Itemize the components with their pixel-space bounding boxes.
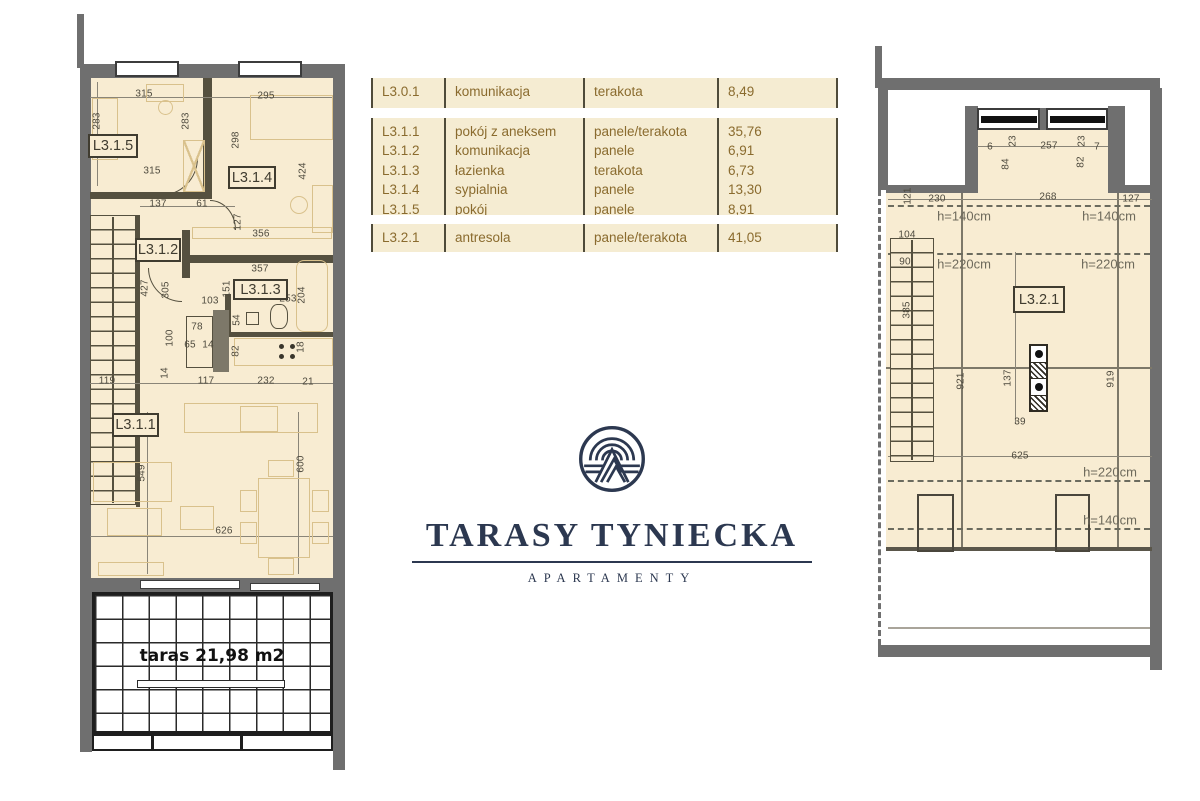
- interior-wall: [182, 230, 190, 278]
- dimension-label: 82: [231, 345, 242, 357]
- table-cell: komunikacja: [455, 141, 583, 160]
- table-column: 35,766,916,7313,308,91: [717, 118, 836, 215]
- roof-edge-dashed: [878, 190, 881, 645]
- dimension-label: 626: [215, 526, 232, 537]
- table-cell: sypialnia: [455, 180, 583, 199]
- room-label: L3.1.3: [233, 279, 288, 300]
- dimension-label: 61: [196, 199, 208, 210]
- roof-window: [917, 494, 954, 552]
- table-column: panele/terakota: [583, 224, 717, 252]
- terrace-wall-right: [333, 592, 345, 770]
- table-column: pokój z aneksemkomunikacjałazienkasypial…: [444, 118, 583, 215]
- dimension-label: 117: [198, 376, 215, 387]
- sink: [246, 312, 259, 325]
- table-cell: 13,30: [728, 180, 836, 199]
- dimension-line: [1015, 252, 1016, 424]
- kitchen-counter: [234, 338, 333, 366]
- table-cell: L3.1.3: [382, 161, 444, 180]
- table-cell: L3.1.2: [382, 141, 444, 160]
- wall-stub: [77, 14, 84, 68]
- height-label: h=140cm: [1083, 513, 1137, 528]
- brand-title: TARASY TYNIECKA: [400, 517, 824, 555]
- dimension-label: 6: [987, 142, 993, 153]
- stove-burner: [279, 354, 284, 359]
- table-column: L3.0.1: [371, 78, 444, 108]
- height-label: h=220cm: [937, 257, 991, 272]
- window: [238, 61, 302, 77]
- window: [115, 61, 179, 77]
- dimension-label: 305: [161, 281, 172, 298]
- dimension-label: 82: [1076, 156, 1087, 168]
- room-label: L3.1.2: [135, 238, 181, 262]
- table-column: L3.1.1L3.1.2L3.1.3L3.1.4L3.1.5: [371, 118, 444, 215]
- planter-divider: [240, 735, 243, 750]
- table-cell: L3.0.1: [382, 82, 444, 101]
- dimension-label: 54: [232, 314, 243, 326]
- brand-block: TARASY TYNIECKA APARTAMENTY: [400, 425, 824, 586]
- staircase-rail: [112, 217, 114, 503]
- attic-wall-bottom: [878, 645, 1160, 657]
- table-cell: łazienka: [455, 161, 583, 180]
- dimension-label: 385: [902, 301, 913, 318]
- dimension-label: 100: [165, 329, 176, 346]
- vent-cell: [1031, 396, 1046, 410]
- knee-wall-right: [1108, 185, 1152, 193]
- table-cell: 8,91: [728, 200, 836, 215]
- dimension-label: 232: [257, 376, 274, 387]
- dimension-label: 137: [149, 199, 166, 210]
- dimension-label: 315: [135, 89, 152, 100]
- dining-chair: [268, 460, 294, 477]
- tv-stand: [98, 562, 164, 576]
- dimension-label: 549: [137, 464, 148, 481]
- height-line-140: [888, 205, 1150, 207]
- dimension-label: 84: [1001, 158, 1012, 170]
- dimension-label: 7: [1094, 142, 1100, 153]
- mountain-circle-logo-icon: [578, 425, 646, 493]
- dimension-label: 424: [298, 162, 309, 179]
- dimension-label: 104: [898, 230, 915, 241]
- dimension-label: 78: [191, 322, 203, 333]
- dimension-label: 151: [222, 280, 233, 297]
- dimension-label: 119: [99, 376, 116, 387]
- armchair: [107, 508, 162, 536]
- dimension-label: 268: [1039, 192, 1056, 203]
- dimension-label: 14: [160, 367, 171, 379]
- kitchen-appliance: [240, 406, 278, 432]
- table-cell: 6,73: [728, 161, 836, 180]
- height-label: h=140cm: [937, 209, 991, 224]
- dining-chair: [240, 522, 257, 544]
- chimney-stack: [1029, 344, 1048, 412]
- planter-divider: [151, 735, 154, 750]
- dimension-label: 137: [1003, 369, 1014, 386]
- table-cell: komunikacja: [455, 82, 583, 101]
- dormer-wall-right: [1108, 106, 1125, 192]
- brand-rule: [412, 561, 812, 563]
- table-column: komunikacja: [444, 78, 583, 108]
- dimension-label: 21: [302, 377, 314, 388]
- installation-shaft: [213, 310, 229, 372]
- dimension-label: 356: [252, 229, 269, 240]
- table-cell: terakota: [594, 82, 717, 101]
- bed: [250, 95, 333, 140]
- height-label: h=220cm: [1081, 257, 1135, 272]
- window-bar: [1050, 116, 1105, 123]
- window-bar: [981, 116, 1037, 123]
- vent-cell: [1031, 346, 1046, 363]
- dimension-label: 283: [92, 112, 103, 129]
- desk-chair: [158, 100, 173, 115]
- terrace-door-window: [140, 580, 240, 589]
- staircase-rail: [911, 240, 913, 460]
- table-column: antresola: [444, 224, 583, 252]
- dining-chair: [312, 522, 329, 544]
- table-band: L3.1.1L3.1.2L3.1.3L3.1.4L3.1.5pokój z an…: [371, 118, 838, 215]
- eave-line: [888, 627, 1150, 629]
- terrace-bench: [137, 680, 285, 688]
- coffee-table: [180, 506, 214, 530]
- dimension-label: 625: [1011, 451, 1028, 462]
- height-line-220: [888, 480, 1150, 482]
- dimension-label: 298: [231, 131, 242, 148]
- table-cell: L3.1.4: [382, 180, 444, 199]
- interior-wall: [228, 332, 333, 337]
- table-cell: panele: [594, 200, 717, 215]
- attic-wall-top: [878, 78, 1160, 90]
- stove-burner: [290, 354, 295, 359]
- dimension-label: 103: [201, 296, 218, 307]
- table-column: L3.2.1: [371, 224, 444, 252]
- desk-chair: [290, 196, 308, 214]
- table-cell: panele/terakota: [594, 228, 717, 247]
- dimension-label: 23: [1008, 135, 1019, 147]
- table-column: terakota: [583, 78, 717, 108]
- terrace-wall-left: [80, 592, 92, 752]
- height-label: h=220cm: [1083, 465, 1137, 480]
- dining-chair: [240, 490, 257, 512]
- table-cell: L3.1.1: [382, 122, 444, 141]
- terrace-window: [250, 583, 320, 591]
- vent-cell: [1031, 363, 1046, 379]
- dining-chair: [268, 558, 294, 575]
- dimension-label: 127: [1122, 194, 1139, 205]
- terrace-planter-row: [92, 734, 333, 751]
- table-cell: terakota: [594, 161, 717, 180]
- room-label: L3.2.1: [1013, 286, 1065, 313]
- dimension-label: 39: [1014, 417, 1026, 428]
- table-cell: L3.1.5: [382, 200, 444, 215]
- vent-cell: [1031, 379, 1046, 396]
- dimension-label: 295: [257, 91, 274, 102]
- dining-table: [258, 478, 310, 558]
- dimension-label: 204: [297, 286, 308, 303]
- dimension-label: 14: [202, 340, 214, 351]
- table-cell: pokój z aneksem: [455, 122, 583, 141]
- attic-wall-left-upper: [878, 78, 888, 190]
- dimension-label: 600: [296, 455, 307, 472]
- dimension-label: 919: [1106, 370, 1117, 387]
- floorplan-sheet: taras 21,98 m2 L3.0.1komunikacjaterakota…: [0, 0, 1200, 801]
- knee-line: [961, 193, 963, 548]
- dining-chair: [312, 490, 329, 512]
- table-cell: panele: [594, 141, 717, 160]
- knee-line: [1117, 193, 1119, 548]
- table-cell: panele: [594, 180, 717, 199]
- dimension-label: 90: [899, 257, 911, 268]
- table-column: 8,49: [717, 78, 836, 108]
- dimension-label: 23: [1077, 135, 1088, 147]
- wall-right: [333, 64, 345, 592]
- table-cell: pokój: [455, 200, 583, 215]
- table-cell: panele/terakota: [594, 122, 717, 141]
- dimension-label: 65: [184, 340, 196, 351]
- dimension-label: 427: [140, 279, 151, 296]
- desk: [312, 185, 333, 233]
- dimension-label: 283: [181, 112, 192, 129]
- table-cell: 8,49: [728, 82, 836, 101]
- table-column: 41,05: [717, 224, 836, 252]
- table-cell: 6,91: [728, 141, 836, 160]
- table-cell: antresola: [455, 228, 583, 247]
- room-label: L3.1.5: [88, 134, 138, 158]
- terrace-area-label: taras 21,98 m2: [140, 646, 285, 666]
- attic-wall-stub: [875, 46, 882, 88]
- dimension-label: 18: [296, 341, 307, 353]
- table-cell: L3.2.1: [382, 228, 444, 247]
- table-band: L3.0.1komunikacjaterakota8,49: [371, 78, 838, 108]
- sofa: [93, 462, 172, 502]
- knee-wall-left: [886, 185, 978, 193]
- table-band: L3.2.1antresolapanele/terakota41,05: [371, 224, 838, 252]
- dimension-label: 315: [143, 166, 160, 177]
- table-cell: 35,76: [728, 122, 836, 141]
- toilet: [270, 304, 288, 329]
- dimension-label: 121: [903, 187, 914, 204]
- stove-burner: [279, 344, 284, 349]
- room-label: L3.1.1: [112, 413, 159, 437]
- attic-wall-right: [1150, 88, 1162, 670]
- table-cell: 41,05: [728, 228, 836, 247]
- stove-burner: [290, 344, 295, 349]
- dimension-label: 921: [956, 372, 967, 389]
- height-label: h=140cm: [1082, 209, 1136, 224]
- dimension-label: 257: [1040, 141, 1057, 152]
- wardrobe: [183, 140, 205, 192]
- table-column: panele/terakotapaneleterakotapanelepanel…: [583, 118, 717, 215]
- dimension-label: 127: [233, 213, 244, 230]
- dimension-label: 230: [928, 194, 945, 205]
- dimension-label: 357: [251, 264, 268, 275]
- brand-subtitle: APARTAMENTY: [400, 571, 824, 586]
- room-label: L3.1.4: [228, 166, 276, 189]
- logo: [400, 425, 824, 493]
